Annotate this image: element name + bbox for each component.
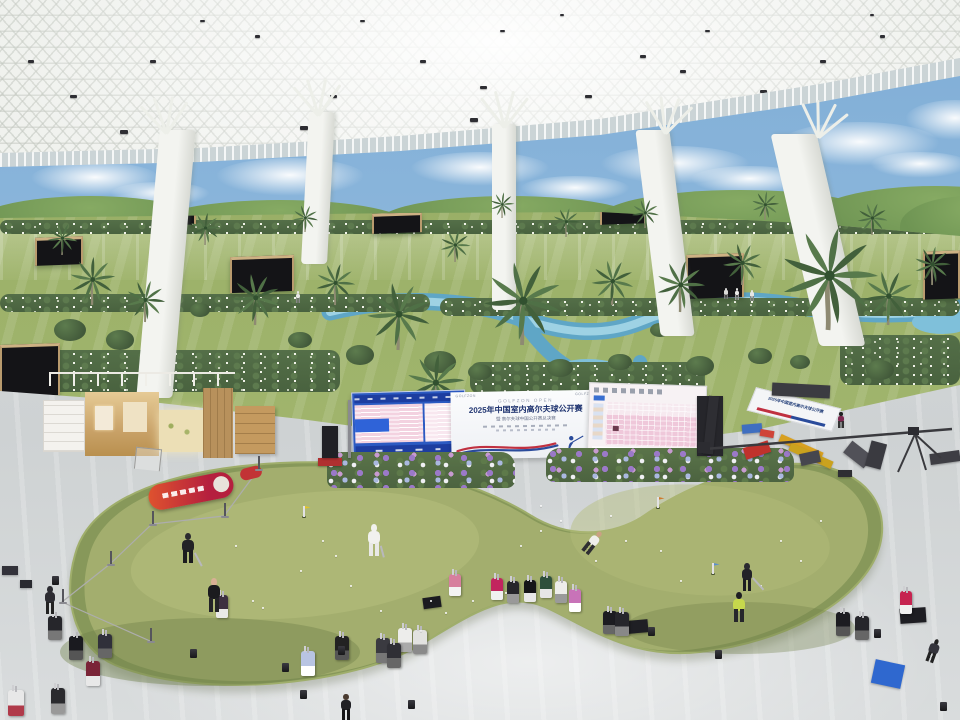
stanchion-post: [62, 589, 64, 603]
uplight-fixture: [874, 629, 881, 638]
stanchion-base: [59, 602, 67, 604]
golf-ball: [660, 550, 662, 552]
golf-bag: [69, 636, 83, 660]
golf-bag: [615, 612, 628, 636]
golf-bag: [449, 574, 462, 596]
golf-clubs: [304, 646, 306, 652]
golf-bag: [8, 690, 23, 716]
stanchion-post: [258, 456, 260, 470]
golf-clubs: [390, 638, 392, 644]
golf-clubs: [402, 623, 404, 629]
golf-bag: [900, 591, 913, 614]
person-legs: [209, 598, 220, 612]
golf-clubs: [89, 656, 91, 662]
person-legs: [838, 421, 843, 428]
uplight-fixture: [338, 646, 345, 655]
golf-ball: [520, 545, 522, 547]
person-legs: [296, 298, 300, 303]
person: [340, 694, 353, 720]
person: [295, 291, 301, 303]
golf-ball: [380, 610, 382, 612]
golf-bag: [855, 616, 868, 640]
golf-clubs: [54, 683, 56, 689]
golf-clubs: [102, 629, 104, 635]
golf-clubs: [73, 631, 75, 637]
golf-ball: [335, 555, 337, 557]
stanchion-base: [255, 469, 263, 471]
golf-clubs: [903, 586, 905, 592]
golf-ball: [610, 515, 612, 517]
uplight-fixture: [648, 627, 655, 636]
uplight-fixture: [190, 649, 197, 658]
putter-club: [194, 552, 202, 566]
golf-ball: [350, 585, 352, 587]
practice-flag: [659, 497, 665, 501]
person: [206, 578, 223, 612]
person-legs: [342, 709, 350, 720]
golf-bag: [48, 616, 61, 640]
person: [579, 528, 605, 556]
golf-ball: [235, 545, 237, 547]
stanchion-post: [150, 628, 152, 642]
players-and-equipment: [0, 0, 960, 720]
stanchion-post: [110, 551, 112, 565]
golf-clubs: [840, 607, 842, 613]
golf-bag: [301, 651, 315, 676]
golf-bag: [491, 578, 504, 600]
golf-ball: [540, 505, 542, 507]
person: [740, 563, 754, 591]
person-legs: [183, 550, 193, 563]
golf-ball: [680, 580, 682, 582]
practice-flag: [714, 563, 720, 567]
person-legs: [46, 602, 55, 614]
golf-bag: [507, 581, 520, 603]
golf-bag: [387, 643, 401, 668]
golf-ball: [322, 540, 324, 542]
golf-clubs: [339, 631, 341, 637]
uplight-fixture: [300, 690, 307, 699]
golf-clubs: [510, 576, 512, 582]
golf-ball: [820, 520, 822, 522]
flag-pole: [657, 497, 659, 508]
person-legs: [743, 579, 752, 591]
golf-clubs: [543, 571, 545, 577]
golf-ball: [430, 600, 432, 602]
person: [181, 533, 196, 563]
golf-clubs: [859, 611, 861, 617]
person-legs: [926, 651, 937, 663]
flag-pole: [303, 506, 305, 517]
golf-bag: [524, 580, 537, 602]
golf-ball: [252, 600, 254, 602]
golf-clubs: [527, 575, 529, 581]
uplight-fixture: [282, 663, 289, 672]
golf-bag: [836, 612, 849, 636]
golf-bag: [555, 581, 568, 603]
stanchion-base: [107, 564, 115, 566]
person-legs: [734, 609, 744, 622]
golf-ball: [445, 612, 447, 614]
golf-clubs: [417, 625, 419, 631]
person-legs: [724, 294, 728, 299]
golf-ball: [472, 600, 474, 602]
uplight-fixture: [408, 700, 415, 709]
golf-clubs: [558, 576, 560, 582]
golf-clubs: [494, 573, 496, 579]
golf-ball: [540, 530, 542, 532]
golf-ball: [595, 560, 597, 562]
stanchion-post: [152, 511, 154, 525]
golf-ball: [780, 540, 782, 542]
golf-bag: [569, 589, 582, 612]
stanchion-post: [224, 503, 226, 517]
person: [43, 586, 57, 614]
golf-bag: [413, 630, 427, 654]
person: [732, 592, 747, 622]
golf-ball: [262, 607, 264, 609]
golf-ball: [625, 540, 627, 542]
person-legs: [750, 296, 754, 301]
golf-clubs: [452, 569, 454, 575]
stanchion-base: [147, 641, 155, 643]
golf-ball: [300, 570, 302, 572]
golf-ball: [800, 560, 802, 562]
person: [366, 524, 382, 556]
practice-flag: [305, 506, 311, 510]
person: [734, 288, 740, 300]
indoor-golf-arena-photo: GOLFZON GOLFZON GOLFZON OPEN 2025年中国室内高尔…: [0, 0, 960, 720]
golf-clubs: [12, 685, 14, 691]
stanchion-base: [149, 524, 157, 526]
golf-clubs: [619, 607, 621, 613]
putter-club: [752, 577, 764, 590]
golf-ball: [560, 520, 562, 522]
person-legs: [735, 295, 739, 300]
golf-clubs: [572, 584, 574, 590]
golf-bag: [540, 576, 553, 598]
golf-bag: [98, 634, 112, 658]
person-legs: [369, 543, 379, 556]
person: [723, 288, 729, 299]
golf-bag: [86, 661, 100, 686]
person: [837, 412, 845, 428]
golf-clubs: [380, 633, 382, 639]
uplight-fixture: [715, 650, 722, 659]
stanchion-base: [221, 516, 229, 518]
person: [749, 290, 755, 301]
person: [924, 637, 943, 664]
uplight-fixture: [940, 702, 947, 711]
golf-clubs: [607, 606, 609, 612]
uplight-fixture: [52, 576, 59, 585]
flag-pole: [712, 563, 714, 574]
golf-bag: [51, 688, 66, 714]
